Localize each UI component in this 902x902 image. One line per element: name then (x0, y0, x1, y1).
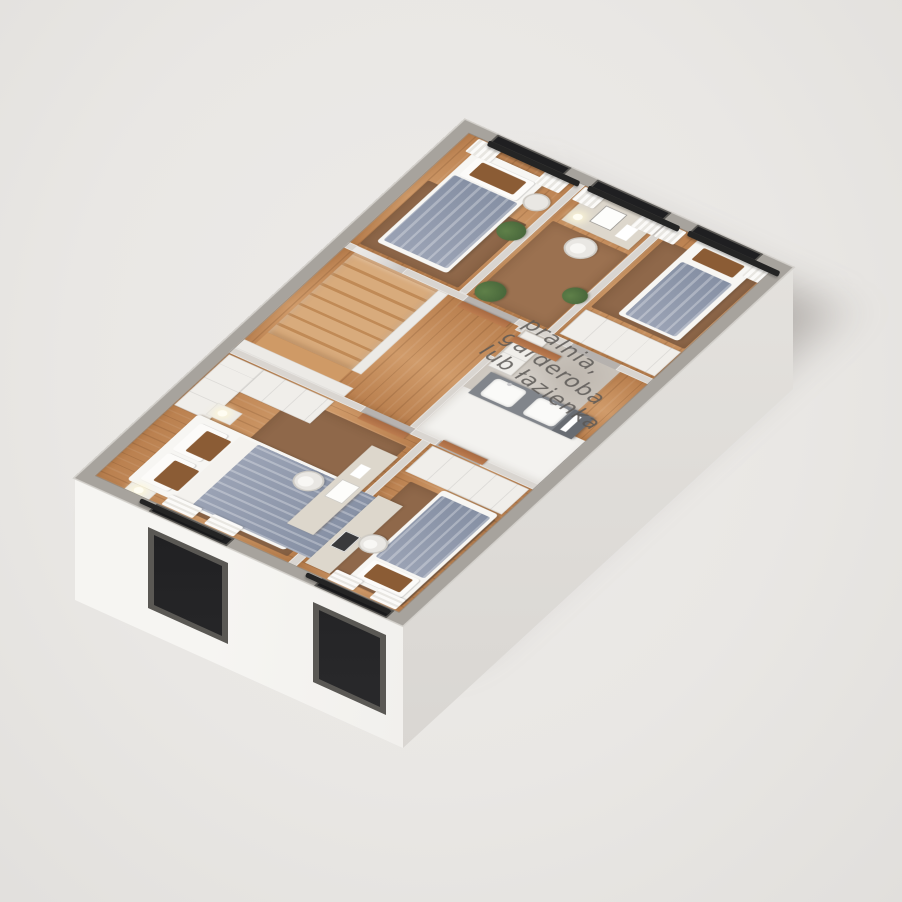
render-canvas: pralnia, garderoba lub łazienka (0, 0, 902, 902)
